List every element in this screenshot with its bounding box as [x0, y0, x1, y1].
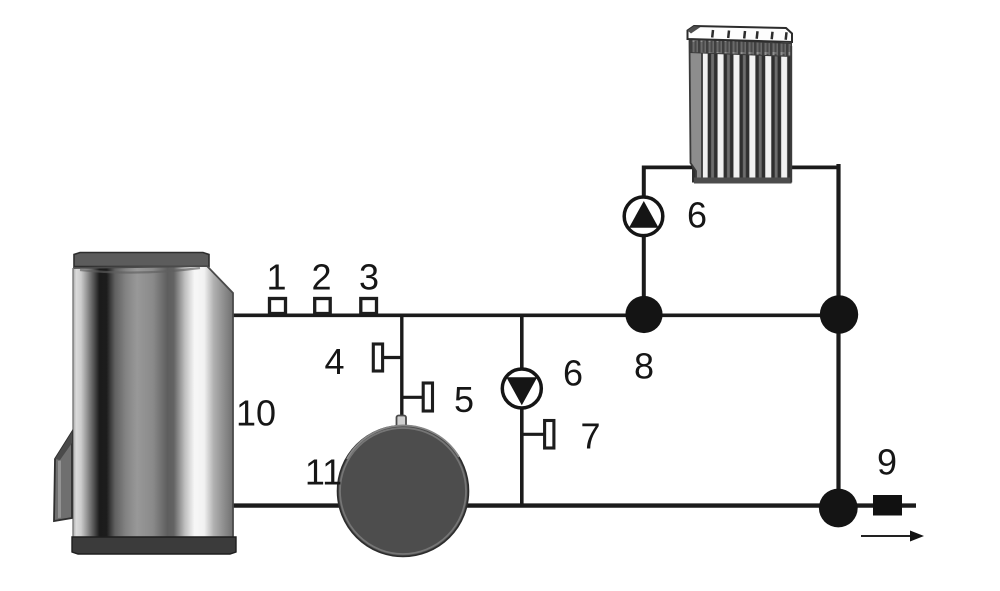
svg-text:3: 3 — [359, 257, 379, 298]
svg-text:5: 5 — [454, 379, 474, 420]
svg-text:10: 10 — [236, 393, 276, 434]
svg-text:6: 6 — [687, 195, 707, 236]
svg-text:6: 6 — [563, 353, 583, 394]
svg-text:1: 1 — [266, 257, 286, 298]
svg-text:11: 11 — [305, 452, 342, 493]
svg-text:2: 2 — [311, 257, 331, 298]
svg-text:4: 4 — [324, 341, 344, 382]
svg-text:9: 9 — [877, 442, 897, 483]
svg-text:8: 8 — [634, 346, 654, 387]
svg-text:7: 7 — [580, 416, 600, 457]
